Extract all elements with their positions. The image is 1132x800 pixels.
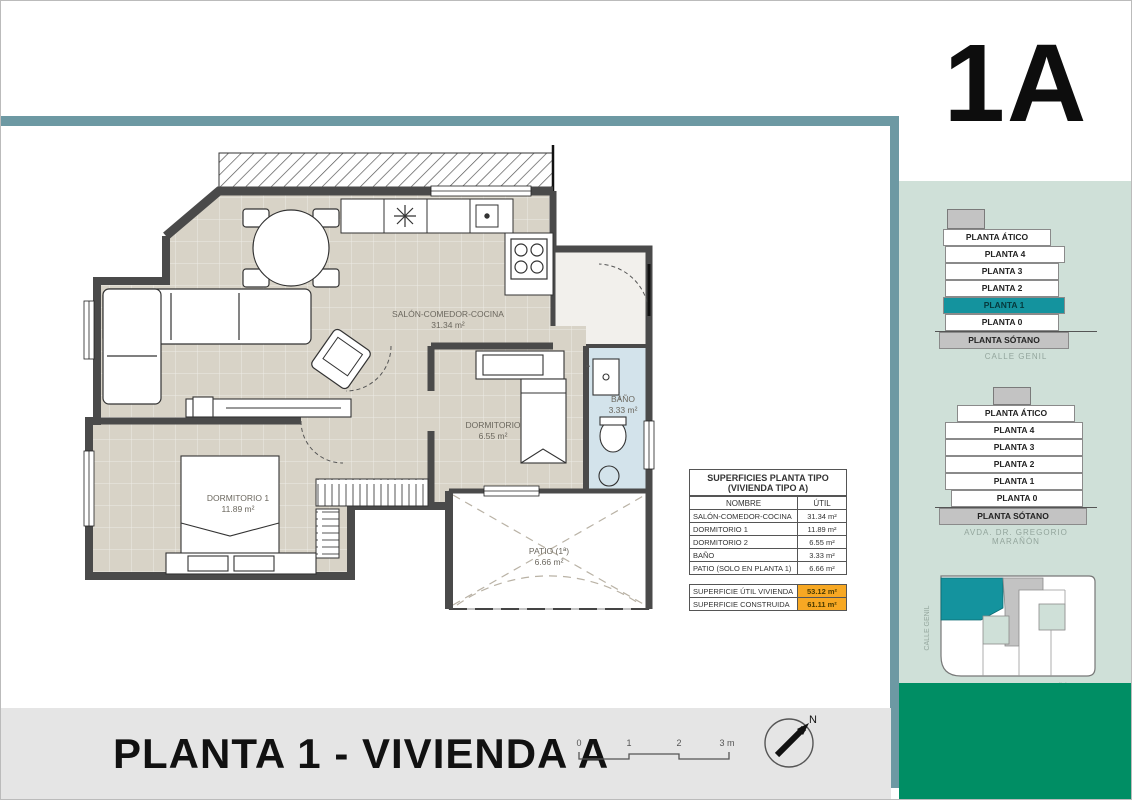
col-header-nombre: NOMBRE [690, 497, 798, 510]
scale-bar: 0 1 2 3 m [569, 719, 749, 774]
row-value: 6.66 m² [798, 562, 847, 575]
row-value: 11.89 m² [798, 523, 847, 536]
floor-row-2[interactable]: PLANTA 2 [945, 280, 1059, 297]
floor-row-sotano[interactable]: PLANTA SÓTANO [939, 332, 1069, 349]
tv-shelf [186, 397, 351, 417]
room-area-bano: 3.33 m² [609, 405, 638, 415]
floor-row-4[interactable]: PLANTA 4 [945, 246, 1065, 263]
wardrobe-side [316, 509, 339, 558]
areas-table-title-1: SUPERFICIES PLANTA TIPO [690, 473, 846, 483]
floor-row-0[interactable]: PLANTA 0 [945, 314, 1059, 331]
room-label-patio: PATIO (1ª) [529, 546, 569, 556]
room-label-dormitorio1: DORMITORIO 1 [207, 493, 269, 503]
floor-row-3[interactable]: PLANTA 3 [945, 263, 1059, 280]
north-arrow-icon: N [759, 709, 823, 773]
table-row: PATIO (SOLO EN PLANTA 1)6.66 m² [690, 562, 847, 575]
stack-caption-gregorio-maranon: AVDA. DR. GREGORIO MARAÑÓN [941, 528, 1091, 546]
sidebar-panel: PLANTA ÁTICO PLANTA 4 PLANTA 3 PLANTA 2 … [899, 181, 1132, 683]
stack-roof-box [993, 387, 1031, 405]
wardrobe-top [316, 479, 428, 506]
floorplan-sheet: SALÓN-COMEDOR-COCINA 31.34 m² DORMITORIO… [0, 0, 1132, 800]
table-row: SALÓN-COMEDOR-COCINA31.34 m² [690, 510, 847, 523]
room-label-salon: SALÓN-COMEDOR-COCINA [392, 309, 504, 319]
floor-row-2[interactable]: PLANTA 2 [945, 456, 1083, 473]
floor-row-atico[interactable]: PLANTA ÁTICO [957, 405, 1075, 422]
row-value: 3.33 m² [798, 549, 847, 562]
sheet-title: PLANTA 1 - VIVIENDA A [113, 730, 609, 778]
total-row: SUPERFICIE CONSTRUIDA61.11 m² [690, 598, 847, 611]
row-name: SALÓN-COMEDOR-COCINA [690, 510, 798, 523]
room-area-salon: 31.34 m² [431, 320, 465, 330]
scale-tick-2: 2 [676, 738, 681, 748]
floor-row-1[interactable]: PLANTA 1 [945, 473, 1083, 490]
room-label-bano: BAÑO [611, 394, 635, 404]
room-area-dormitorio1: 11.89 m² [222, 504, 255, 514]
floor-row-4[interactable]: PLANTA 4 [945, 422, 1083, 439]
floor-plan-drawing: SALÓN-COMEDOR-COCINA 31.34 m² DORMITORIO… [21, 131, 881, 706]
total-row: SUPERFICIE ÚTIL VIVIENDA53.12 m² [690, 585, 847, 598]
north-label: N [809, 714, 817, 726]
areas-grid: NOMBRE ÚTIL SALÓN-COMEDOR-COCINA31.34 m²… [689, 496, 847, 575]
room-area-dormitorio2: 6.55 m² [479, 431, 508, 441]
site-courtyard-1 [983, 616, 1009, 644]
frame-right-bar [890, 116, 899, 788]
row-name: BAÑO [690, 549, 798, 562]
floor-row-1-highlighted[interactable]: PLANTA 1 [943, 297, 1065, 314]
building-stack-gregorio-maranon: PLANTA ÁTICO PLANTA 4 PLANTA 3 PLANTA 2 … [941, 387, 1091, 546]
hob-icon [511, 239, 547, 279]
areas-table-title-2: (VIVIENDA TIPO A) [690, 483, 846, 493]
stack-caption-calle-genil: CALLE GENIL [941, 352, 1091, 361]
frame-top-bar [1, 116, 899, 126]
floor-row-3[interactable]: PLANTA 3 [945, 439, 1083, 456]
floor-row-atico[interactable]: PLANTA ÁTICO [943, 229, 1051, 246]
scale-tick-0: 0 [576, 738, 581, 748]
table-row: DORMITORIO 111.89 m² [690, 523, 847, 536]
row-value: 6.55 m² [798, 536, 847, 549]
total-value: 53.12 m² [798, 585, 847, 598]
site-plan: CALLE GENIL AVDA. DR GREGORIO MARAÑÓN [921, 568, 1111, 698]
total-name: SUPERFICIE ÚTIL VIVIENDA [690, 585, 798, 598]
building-stack-calle-genil: PLANTA ÁTICO PLANTA 4 PLANTA 3 PLANTA 2 … [941, 209, 1091, 361]
row-name: PATIO (SOLO EN PLANTA 1) [690, 562, 798, 575]
site-courtyard-2 [1039, 604, 1065, 630]
stack-roof-box [947, 209, 985, 229]
total-value: 61.11 m² [798, 598, 847, 611]
floor-row-sotano[interactable]: PLANTA SÓTANO [939, 508, 1087, 525]
floor-row-0[interactable]: PLANTA 0 [951, 490, 1083, 507]
row-name: DORMITORIO 1 [690, 523, 798, 536]
dining-table [243, 209, 339, 287]
table-row: BAÑO3.33 m² [690, 549, 847, 562]
areas-table: SUPERFICIES PLANTA TIPO (VIVIENDA TIPO A… [689, 469, 847, 611]
table-row: DORMITORIO 26.55 m² [690, 536, 847, 549]
footer-bar: PLANTA 1 - VIVIENDA A [1, 708, 891, 800]
unit-label: 1A [899, 29, 1132, 139]
totals-grid: SUPERFICIE ÚTIL VIVIENDA53.12 m² SUPERFI… [689, 584, 847, 611]
room-area-patio: 6.66 m² [535, 557, 564, 567]
fridge-icon [394, 205, 416, 227]
row-value: 31.34 m² [798, 510, 847, 523]
sidebar-green-block [899, 683, 1132, 800]
site-street-left: CALLE GENIL [924, 605, 931, 650]
row-name: DORMITORIO 2 [690, 536, 798, 549]
scale-tick-1: 1 [626, 738, 631, 748]
room-label-dormitorio2: DORMITORIO [465, 420, 520, 430]
total-name: SUPERFICIE CONSTRUIDA [690, 598, 798, 611]
col-header-util: ÚTIL [798, 497, 847, 510]
scale-tick-3: 3 m [719, 738, 734, 748]
sidebar: 1A PLANTA ÁTICO PLANTA 4 PLANTA 3 PLANTA… [899, 1, 1132, 800]
roof-hatch-strip [219, 145, 553, 191]
